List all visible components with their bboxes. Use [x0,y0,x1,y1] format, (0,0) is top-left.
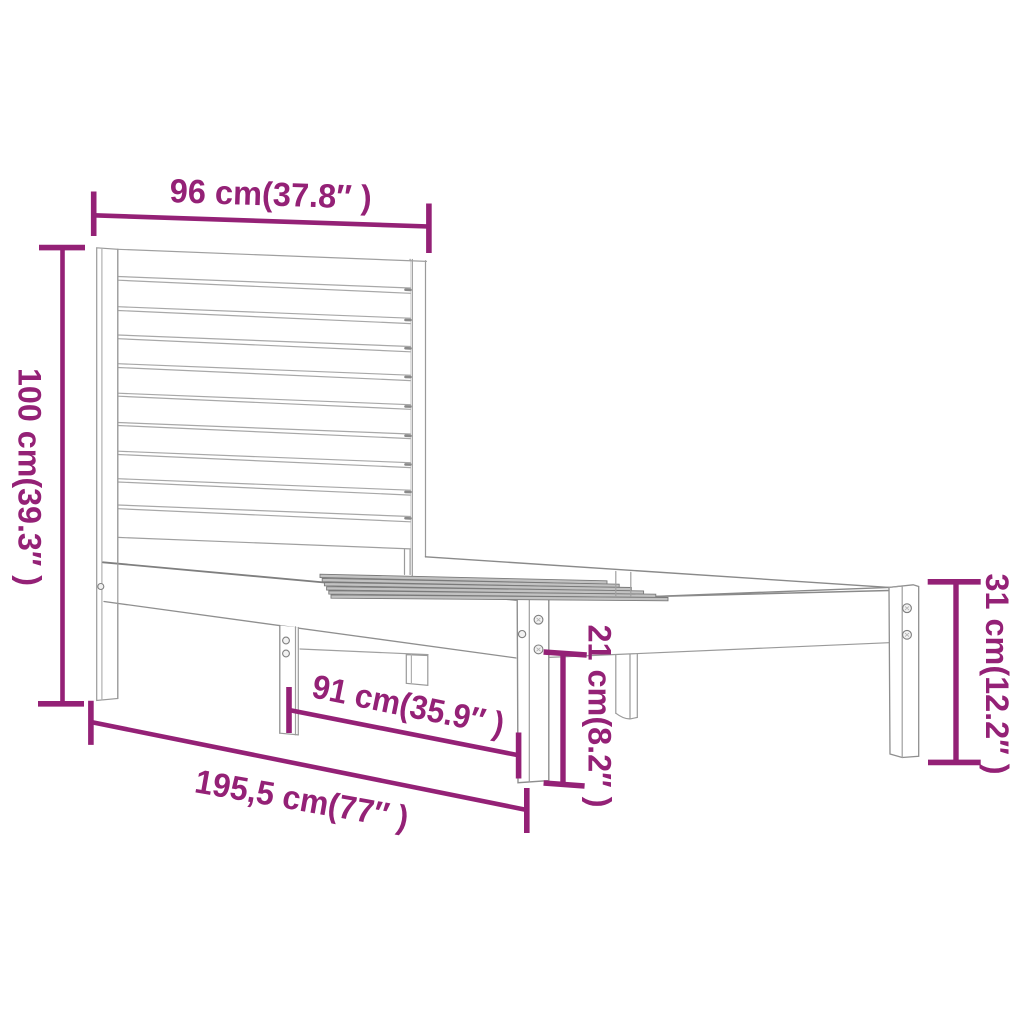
svg-text:21 cm(8.2″ ): 21 cm(8.2″ ) [581,625,617,808]
svg-text:100 cm(39.3″ ): 100 cm(39.3″ ) [11,368,47,586]
svg-text:96 cm(37.8″ ): 96 cm(37.8″ ) [169,173,372,217]
svg-text:31 cm(12.2″ ): 31 cm(12.2″ ) [979,574,1015,775]
